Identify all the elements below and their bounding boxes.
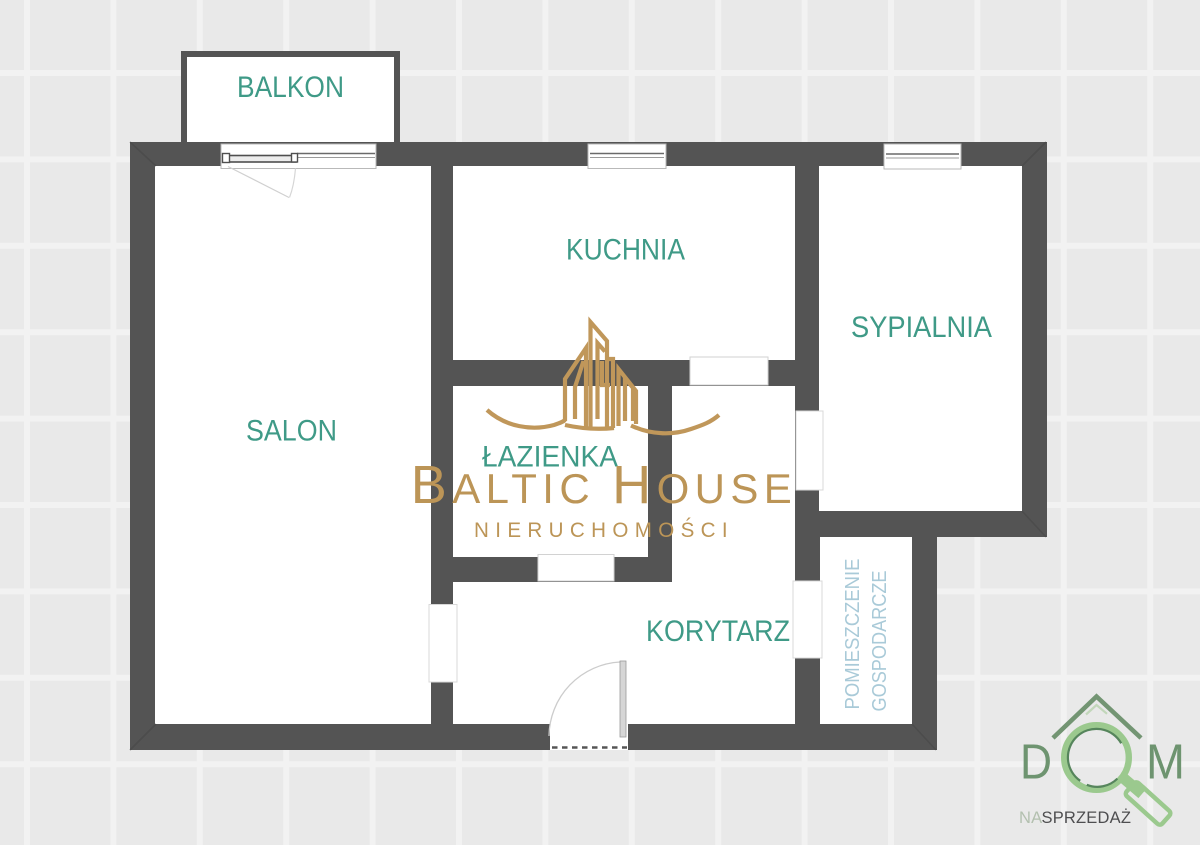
svg-text:POMIESZCZENIE: POMIESZCZENIE — [842, 559, 864, 710]
svg-text:KORYTARZ: KORYTARZ — [646, 615, 790, 648]
svg-text:M: M — [1146, 736, 1185, 790]
svg-text:NIERUCHOMOŚCI: NIERUCHOMOŚCI — [474, 518, 734, 542]
svg-text:BALKON: BALKON — [237, 71, 344, 104]
svg-text:SPRZEDAŻ: SPRZEDAŻ — [1042, 808, 1132, 827]
svg-text:SYPIALNIA: SYPIALNIA — [851, 311, 992, 344]
svg-text:SALON: SALON — [246, 415, 337, 448]
svg-text:GOSPODARCZE: GOSPODARCZE — [869, 571, 891, 712]
svg-text:KUCHNIA: KUCHNIA — [566, 234, 685, 267]
svg-text:NA: NA — [1019, 809, 1042, 827]
svg-text:D: D — [1020, 736, 1052, 790]
